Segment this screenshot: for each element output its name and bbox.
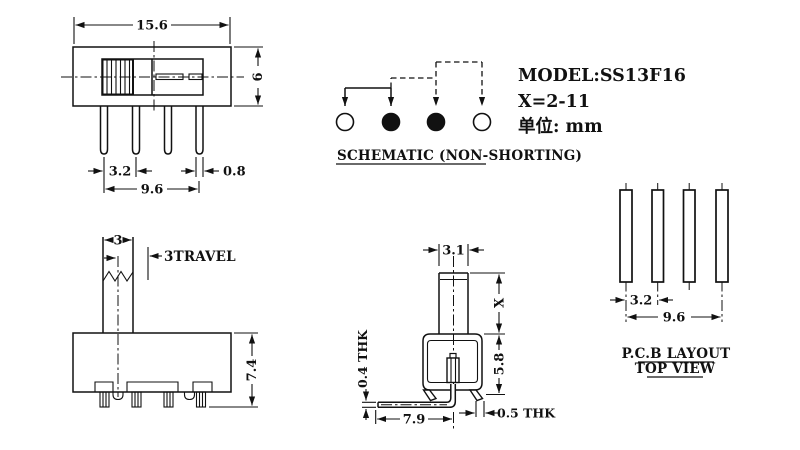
side-view: 3 3TRAVEL xyxy=(73,234,260,408)
dim-text-side-height: 7.4 xyxy=(245,359,260,382)
x-range: X=2-11 xyxy=(518,92,590,112)
dim-pin-thickness: 0.4 THK xyxy=(355,329,376,420)
pcb-slot-4 xyxy=(716,190,728,282)
pcb-slot-1 xyxy=(620,190,632,282)
dim-front-span: 9.6 xyxy=(106,181,200,198)
dim-text-5-8: 5.8 xyxy=(493,353,508,376)
dim-text-width: 15.6 xyxy=(136,19,168,34)
title-block: MODEL:SS13F16 X=2-11 单位: mm xyxy=(518,66,686,137)
technical-drawing: 15.6 6 3.2 0.8 9.6 xyxy=(0,0,800,450)
travel-label: 3TRAVEL xyxy=(164,249,236,265)
dim-text-pcb-span: 9.6 xyxy=(663,311,686,326)
dim-text-span: 9.6 xyxy=(141,183,164,198)
dim-knob-width: 3 xyxy=(105,234,132,249)
dim-text-pcb-pitch: 3.2 xyxy=(630,294,653,309)
dim-text-knob: 3 xyxy=(113,234,122,249)
schematic-pole-3 xyxy=(428,114,445,131)
section-terminal xyxy=(447,354,459,383)
mount-foot-left xyxy=(424,390,437,401)
pcb-slot-3 xyxy=(684,190,696,282)
pcb-slot-2 xyxy=(652,190,664,282)
model-number: MODEL:SS13F16 xyxy=(518,66,686,86)
pcb-layout-subtitle: TOP VIEW xyxy=(635,361,716,377)
unit-note: 单位: mm xyxy=(518,116,603,137)
mount-foot-right xyxy=(470,390,483,401)
dim-text-height: 6 xyxy=(251,72,266,81)
dim-stem-height: X xyxy=(470,273,508,333)
drawing-sheet: 15.6 6 3.2 0.8 9.6 xyxy=(0,0,800,450)
dim-pcb-span: 9.6 xyxy=(628,311,721,326)
mount-tab xyxy=(185,392,195,400)
dim-pcb-pitch: 3.2 xyxy=(610,294,673,309)
side-body-outline xyxy=(73,333,231,392)
thk-pin-label: 0.4 THK xyxy=(355,329,370,388)
schematic-pole-1 xyxy=(337,114,354,131)
dim-text-pin-width: 0.8 xyxy=(223,165,246,180)
dim-foot-thickness: 0.5 THK xyxy=(459,401,556,421)
dim-pin-length: 7.9 xyxy=(376,410,452,428)
dim-side-height: 7.4 xyxy=(209,333,260,407)
dim-text-stem: 3.1 xyxy=(442,244,465,259)
pcb-layout-title: P.C.B LAYOUT xyxy=(622,346,731,362)
thk-foot-label: 0.5 THK xyxy=(497,406,556,421)
pcb-layout: 3.2 9.6 P.C.B LAYOUT TOP VIEW xyxy=(610,183,730,377)
dim-text-pin-len: 7.9 xyxy=(403,413,426,428)
front-view: 15.6 6 3.2 0.8 9.6 xyxy=(61,17,266,198)
schematic-pole-4 xyxy=(474,114,491,131)
dim-section-body-height: 5.8 xyxy=(484,334,508,395)
bent-pin xyxy=(378,384,456,409)
schematic-label: SCHEMATIC (NON-SHORTING) xyxy=(337,148,582,164)
dim-text-x: X xyxy=(493,297,508,308)
section-view: 3.1 0.4 THK xyxy=(355,244,556,431)
schematic-pole-2 xyxy=(383,114,400,131)
base-steps xyxy=(95,382,212,392)
dim-front-pin-width: 0.8 xyxy=(181,157,246,180)
dim-text-pitch: 3.2 xyxy=(109,165,132,180)
dim-front-width: 15.6 xyxy=(74,17,230,44)
front-pins xyxy=(101,106,204,154)
